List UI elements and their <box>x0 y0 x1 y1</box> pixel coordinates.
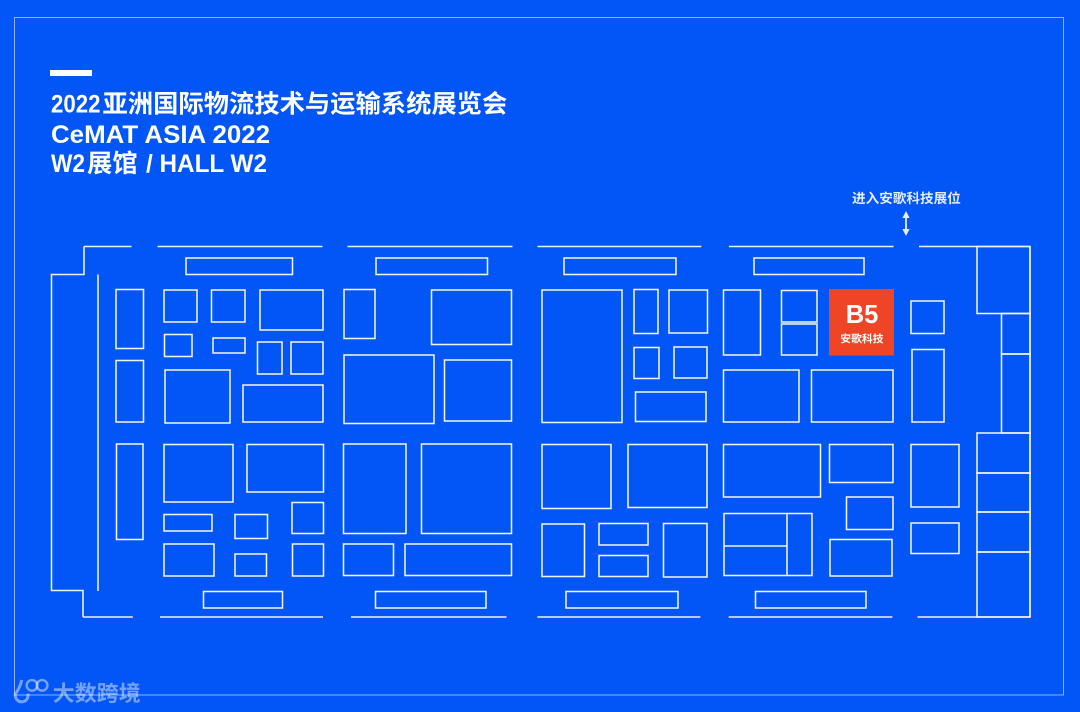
svg-text:/ HALL W2: / HALL W2 <box>146 150 267 178</box>
svg-text:2022: 2022 <box>51 91 101 119</box>
svg-text:CeMAT ASIA 2022: CeMAT ASIA 2022 <box>51 121 270 149</box>
svg-text:B5: B5 <box>846 301 879 329</box>
svg-text:W2: W2 <box>51 150 85 178</box>
